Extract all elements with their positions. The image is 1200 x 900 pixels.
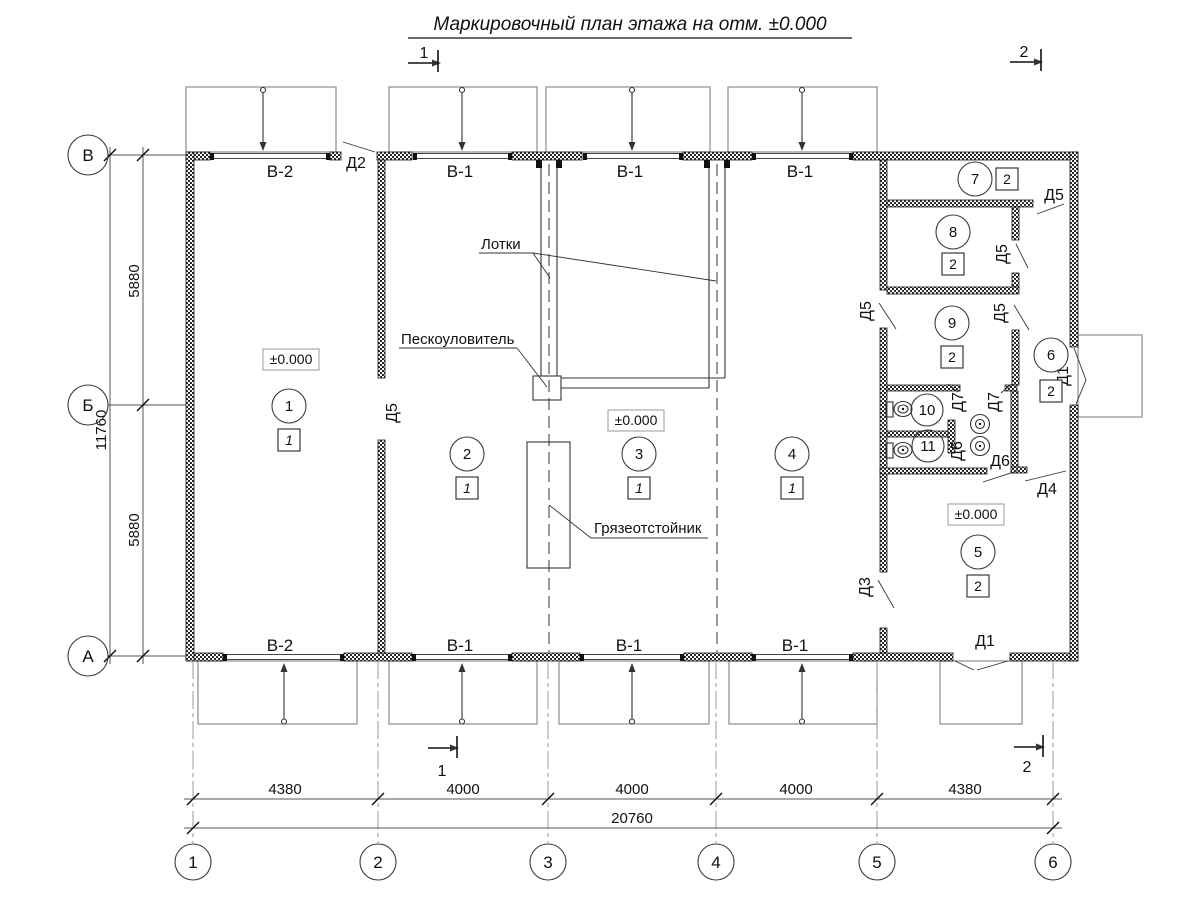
elevation-mark: ±0.000 [615,412,658,428]
room-category: 1 [788,480,796,496]
entrance-porch [940,661,1022,724]
door-label-d5: Д5 [992,303,1009,323]
room-category: 1 [285,432,293,448]
axis-letter: А [82,647,94,666]
apron-arrow-icon [459,663,466,724]
gate-label: В-2 [267,162,293,181]
door-label-d7: Д7 [986,392,1003,412]
room-number: 8 [949,224,957,241]
room-category: 2 [949,256,957,272]
door-label-d6: Д6 [990,453,1010,470]
dim-value: 4000 [446,781,479,798]
dim-value: 4000 [779,781,812,798]
dim-value: 5880 [126,513,143,546]
canopy-arrow-icon [629,88,636,152]
axis-number: 6 [1048,853,1057,872]
door-label-d7: Д7 [950,392,967,412]
room-number: 5 [974,544,982,561]
dimensions-bottom: 4380 4000 4000 4000 4380 20760 1 2 3 4 5… [175,661,1071,880]
elevation-mark: ±0.000 [270,351,313,367]
door-label-d5: Д5 [858,301,875,321]
room-number: 7 [971,171,979,188]
toilet-icon [886,402,912,418]
dim-total: 20760 [611,810,653,827]
room-category: 1 [635,480,643,496]
room-number: 11 [920,438,936,455]
apron-arrow-icon [281,663,288,724]
elevation-mark: ±0.000 [955,506,998,522]
axis-number: 3 [543,853,552,872]
room-number: 1 [285,398,293,415]
door-label-d1: Д1 [975,633,995,650]
axis-number: 2 [373,853,382,872]
gate-label: В-1 [787,162,813,181]
axis-letter: В [82,146,93,165]
axis-number: 1 [188,853,197,872]
mud-settler-label: Грязеотстойник [594,520,702,537]
section-2-bottom-label: 2 [1023,759,1032,776]
gate-label: В-2 [267,636,293,655]
room-number: 10 [919,402,936,419]
room-number: 6 [1047,347,1055,364]
dim-value: 4000 [615,781,648,798]
apron-arrow-icon [799,663,806,724]
room-number: 3 [635,446,643,463]
canopy-arrow-icon [260,88,267,152]
door-label-d2: Д2 [346,155,366,172]
dim-value: 11760 [93,410,110,451]
sand-trap-box [533,376,561,400]
canopy [546,87,710,152]
dim-value: 4380 [948,781,981,798]
gate-label: В-1 [447,162,473,181]
drainage-system [527,160,730,652]
door-label-d4: Д4 [1037,481,1057,498]
room-category: 2 [1047,383,1055,399]
dim-value: 4380 [268,781,301,798]
door-label-d5: Д5 [384,403,401,423]
sand-trap-label: Пескоуловитель [401,331,515,348]
door-label-d3: Д3 [857,577,874,597]
gate-label: В-1 [447,636,473,655]
room-category: 1 [463,480,471,496]
door-label-d5: Д5 [994,244,1011,264]
section-2-top-label: 2 [1020,44,1029,61]
gate-label: В-1 [617,162,643,181]
room-category: 2 [974,578,982,594]
canopy-arrow-icon [799,88,806,152]
gate-labels: В-2 В-1 В-1 В-1 В-2 В-1 В-1 В-1 [267,162,813,655]
door-label-d6: Д6 [949,441,966,461]
canopy-arrow-icon [459,88,466,152]
canopies [186,87,877,152]
dimensions-left: 5880 5880 11760 В Б А [68,135,186,676]
section-1-bottom-label: 1 [438,763,447,780]
trays-label: Лотки [481,236,521,253]
floor-plan-drawing: Маркировочный план этажа на отм. ±0.000 … [0,0,1200,900]
toilet-icon [886,443,912,459]
apron-arrow-icon [629,663,636,724]
door-label-d5: Д5 [1044,187,1064,204]
room-number: 9 [948,315,956,332]
entrance-porch-right [1078,335,1142,417]
room-number: 4 [788,446,796,463]
room-category: 2 [1003,171,1011,187]
gate-label: В-1 [782,636,808,655]
page-title: Маркировочный план этажа на отм. ±0.000 [433,14,827,35]
building-walls [186,152,1078,661]
axis-number: 5 [872,853,881,872]
dim-value: 5880 [126,264,143,297]
room-number: 2 [463,446,471,463]
title-block: Маркировочный план этажа на отм. ±0.000 [408,14,852,38]
section-1-top-label: 1 [420,45,429,62]
washbasin-icon [971,415,990,434]
gate-label: В-1 [616,636,642,655]
floor-plan-sheet: Маркировочный план этажа на отм. ±0.000 … [0,0,1200,900]
sanitary-fixtures [886,402,990,459]
room-category: 2 [948,349,956,365]
axis-letter: Б [82,396,93,415]
washbasin-icon [971,437,990,456]
axis-number: 4 [711,853,720,872]
apron [198,661,357,724]
